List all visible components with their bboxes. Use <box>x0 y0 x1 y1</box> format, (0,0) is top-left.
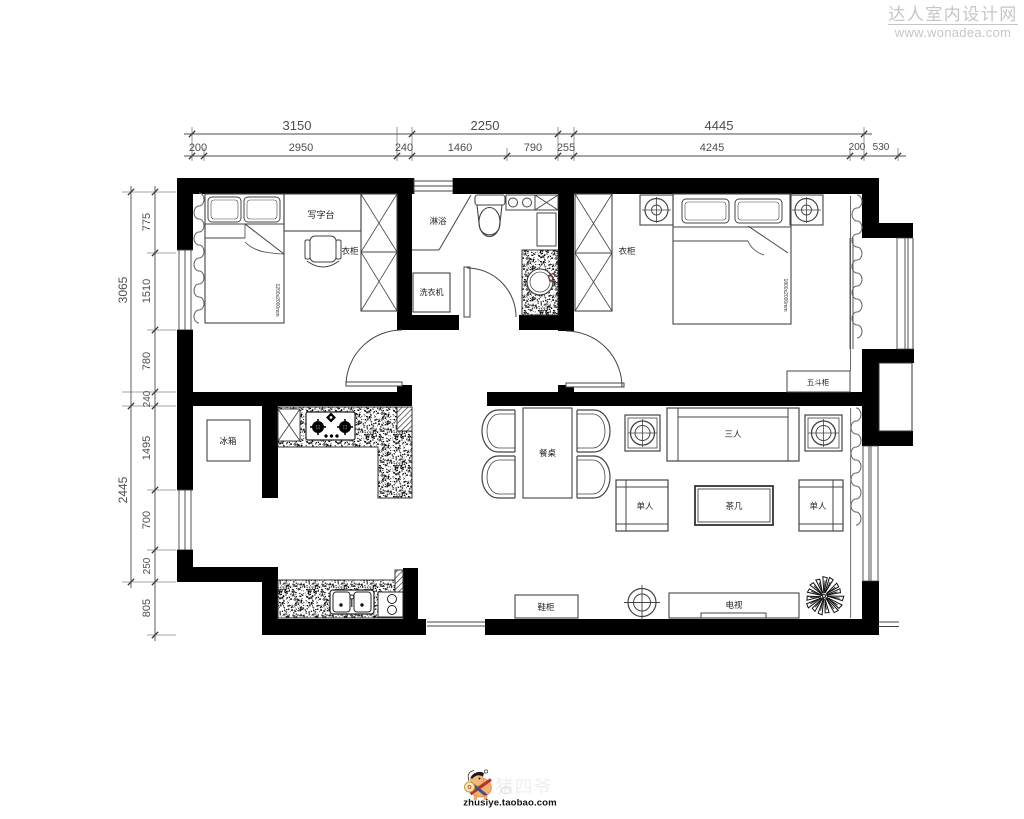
svg-text:1800x2000mm: 1800x2000mm <box>782 278 788 311</box>
svg-text:单人: 单人 <box>636 501 654 511</box>
svg-text:淋浴: 淋浴 <box>429 216 447 226</box>
svg-text:240: 240 <box>142 390 153 407</box>
svg-text:2445: 2445 <box>116 476 130 503</box>
svg-text:2950: 2950 <box>289 142 313 154</box>
svg-text:三人: 三人 <box>724 429 742 439</box>
svg-text:电视: 电视 <box>725 600 743 610</box>
svg-text:3150: 3150 <box>283 118 312 133</box>
svg-text:200: 200 <box>189 142 207 154</box>
svg-text:五斗柜: 五斗柜 <box>807 377 830 387</box>
svg-text:猪四爷: 猪四爷 <box>496 777 553 797</box>
svg-text:衣柜: 衣柜 <box>341 246 359 256</box>
svg-text:www.wonadea.com: www.wonadea.com <box>894 25 1012 40</box>
svg-text:鞋柜: 鞋柜 <box>537 602 555 612</box>
svg-text:780: 780 <box>141 352 153 370</box>
svg-text:700: 700 <box>141 511 153 529</box>
svg-text:写字台: 写字台 <box>307 209 334 220</box>
svg-text:单人: 单人 <box>809 501 827 511</box>
svg-text:zhusiye.taobao.com: zhusiye.taobao.com <box>463 798 557 809</box>
svg-text:3065: 3065 <box>116 276 130 303</box>
svg-text:805: 805 <box>141 599 153 617</box>
svg-text:达人室内设计网: 达人室内设计网 <box>888 5 1018 24</box>
svg-text:1460: 1460 <box>448 142 472 154</box>
svg-text:1200x2000mm: 1200x2000mm <box>274 283 280 316</box>
svg-text:4245: 4245 <box>700 142 724 154</box>
svg-text:餐桌: 餐桌 <box>539 448 557 458</box>
svg-text:洗衣机: 洗衣机 <box>420 287 444 297</box>
svg-text:775: 775 <box>141 213 153 231</box>
svg-text:790: 790 <box>524 142 542 154</box>
svg-text:2250: 2250 <box>471 118 500 133</box>
svg-text:255: 255 <box>557 142 575 154</box>
svg-text:衣柜: 衣柜 <box>618 246 636 256</box>
svg-text:530: 530 <box>873 142 890 153</box>
svg-text:茶几: 茶几 <box>725 501 743 511</box>
svg-text:200: 200 <box>849 142 866 153</box>
svg-text:250: 250 <box>142 557 153 574</box>
svg-text:1495: 1495 <box>141 436 153 460</box>
svg-text:4445: 4445 <box>705 118 734 133</box>
svg-text:1510: 1510 <box>141 279 153 303</box>
svg-text:冰箱: 冰箱 <box>219 436 237 446</box>
svg-text:240: 240 <box>395 142 413 154</box>
